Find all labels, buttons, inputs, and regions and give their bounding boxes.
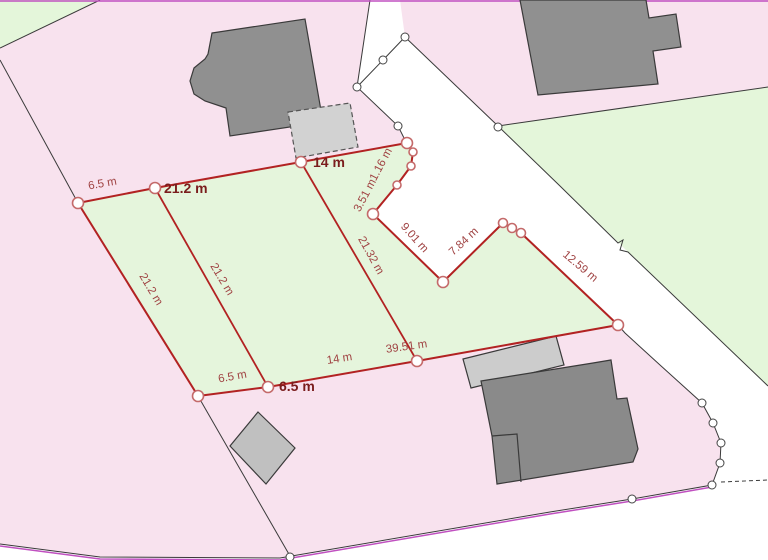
measurement-vertex[interactable] (412, 356, 423, 367)
survey-point (401, 33, 409, 41)
measurement-vertex[interactable] (193, 391, 204, 402)
measurement-vertex[interactable] (296, 157, 307, 168)
measurement-vertex[interactable] (368, 209, 379, 220)
measurement-vertex[interactable] (499, 219, 508, 228)
survey-point (394, 122, 402, 130)
measurement-vertex[interactable] (613, 320, 624, 331)
measurement-vertex[interactable] (73, 198, 84, 209)
map-canvas[interactable]: 6.5 m 21.2 m 14 m 3.51 m 1.16 m 9.01 m 7… (0, 0, 768, 560)
label-21.2m-bold: 21.2 m (164, 180, 208, 196)
measurement-vertex[interactable] (402, 138, 413, 149)
survey-point (708, 481, 716, 489)
survey-point (709, 419, 717, 427)
survey-point (353, 83, 361, 91)
survey-point (628, 495, 636, 503)
survey-point (494, 123, 502, 131)
measurement-vertex[interactable] (438, 277, 449, 288)
survey-point (286, 553, 294, 560)
measurement-vertex[interactable] (517, 229, 526, 238)
measurement-vertex[interactable] (508, 224, 517, 233)
measurement-vertex[interactable] (263, 382, 274, 393)
survey-point (379, 56, 387, 64)
measurement-vertex[interactable] (393, 181, 401, 189)
building-dark-south (481, 360, 638, 484)
measurement-vertex[interactable] (407, 162, 415, 170)
map-viewport[interactable]: 6.5 m 21.2 m 14 m 3.51 m 1.16 m 9.01 m 7… (0, 0, 768, 560)
survey-point (717, 439, 725, 447)
label-6.5m-bold: 6.5 m (279, 378, 315, 394)
survey-point (698, 399, 706, 407)
survey-point (716, 459, 724, 467)
measurement-vertex[interactable] (150, 183, 161, 194)
measurement-vertex[interactable] (409, 148, 417, 156)
label-14m-bold: 14 m (313, 154, 345, 170)
